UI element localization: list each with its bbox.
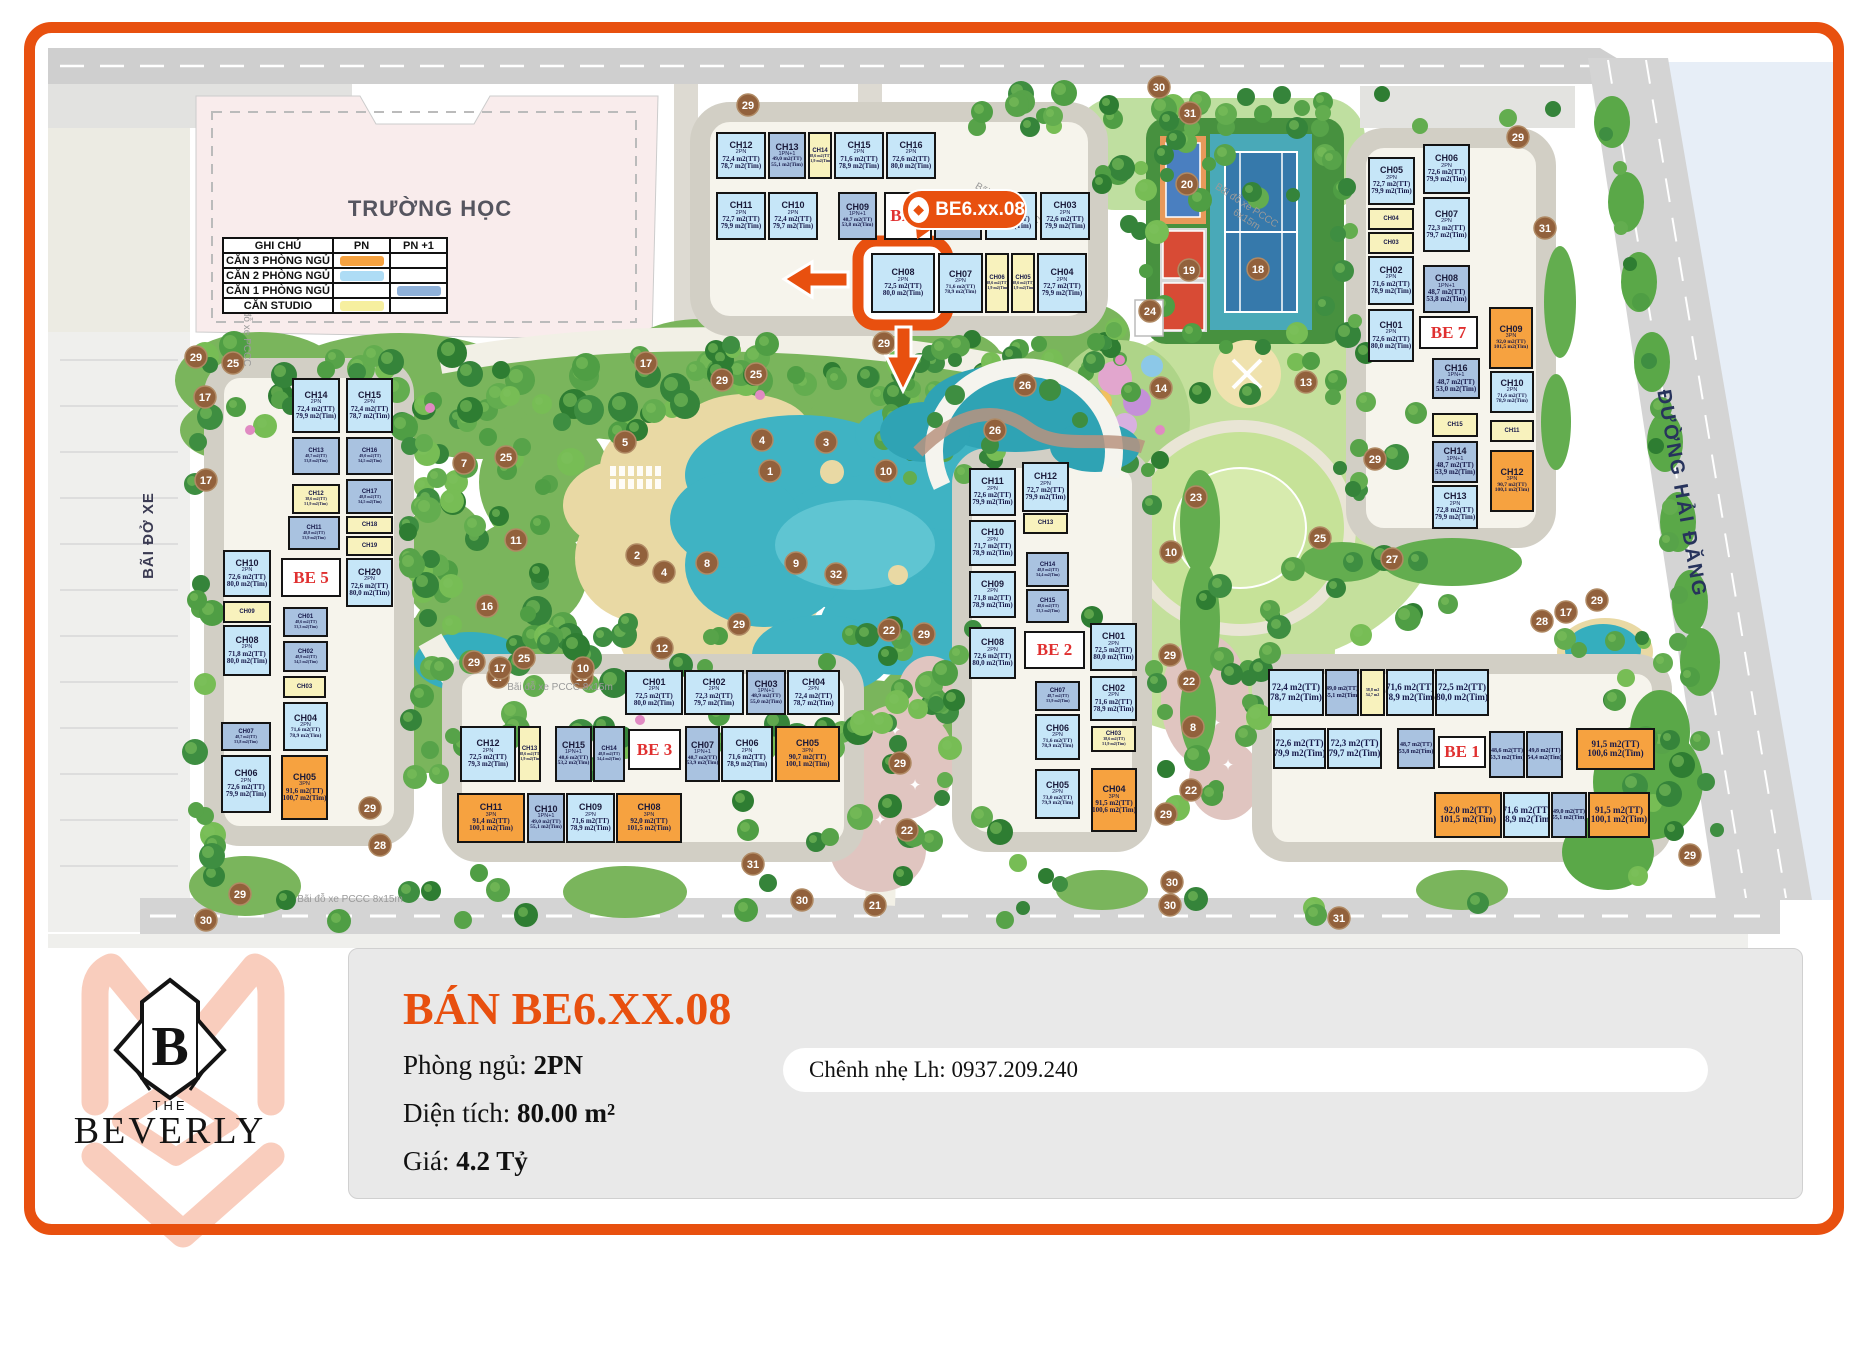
- svg-text:4: 4: [759, 435, 766, 447]
- svg-text:8: 8: [704, 558, 710, 570]
- svg-text:✦: ✦: [1222, 757, 1235, 774]
- svg-text:10: 10: [1165, 547, 1177, 559]
- svg-text:12: 12: [656, 643, 668, 655]
- svg-text:25: 25: [227, 358, 239, 370]
- svg-text:10: 10: [880, 466, 892, 478]
- svg-text:17: 17: [494, 663, 506, 675]
- svg-text:20: 20: [1181, 179, 1193, 191]
- svg-text:32: 32: [830, 569, 842, 581]
- svg-text:2: 2: [634, 550, 640, 562]
- svg-text:5: 5: [622, 437, 628, 449]
- svg-text:30: 30: [200, 915, 212, 927]
- svg-text:14: 14: [1155, 383, 1168, 395]
- svg-text:29: 29: [468, 657, 480, 669]
- svg-text:22: 22: [883, 625, 895, 637]
- svg-text:22: 22: [1185, 785, 1197, 797]
- svg-text:7: 7: [461, 458, 467, 470]
- svg-text:30: 30: [1166, 877, 1178, 889]
- svg-text:29: 29: [716, 375, 728, 387]
- svg-text:19: 19: [1183, 265, 1195, 277]
- svg-text:27: 27: [1386, 554, 1398, 566]
- svg-text:29: 29: [1164, 650, 1176, 662]
- svg-text:28: 28: [1536, 616, 1548, 628]
- svg-text:25: 25: [750, 369, 762, 381]
- svg-text:29: 29: [878, 338, 890, 350]
- svg-text:22: 22: [1183, 676, 1195, 688]
- svg-text:17: 17: [200, 475, 212, 487]
- svg-text:1: 1: [767, 466, 773, 478]
- svg-text:31: 31: [1539, 223, 1551, 235]
- svg-text:9: 9: [793, 558, 799, 570]
- svg-text:B: B: [151, 1016, 188, 1078]
- svg-text:29: 29: [918, 629, 930, 641]
- svg-text:24: 24: [1144, 306, 1157, 318]
- svg-text:BEVERLY: BEVERLY: [74, 1110, 266, 1152]
- svg-text:21: 21: [869, 900, 881, 912]
- svg-text:29: 29: [1684, 850, 1696, 862]
- svg-text:17: 17: [199, 392, 211, 404]
- svg-text:31: 31: [1184, 108, 1196, 120]
- svg-text:30: 30: [1153, 82, 1165, 94]
- svg-text:17: 17: [1560, 607, 1572, 619]
- svg-text:18: 18: [1252, 264, 1264, 276]
- svg-text:29: 29: [894, 758, 906, 770]
- svg-text:28: 28: [374, 840, 386, 852]
- svg-text:Bãi đỗ xe PCCC 8x15m: Bãi đỗ xe PCCC 8x15m: [297, 892, 403, 905]
- svg-text:3: 3: [823, 437, 829, 449]
- svg-text:29: 29: [1369, 454, 1381, 466]
- svg-text:16: 16: [481, 601, 493, 613]
- svg-text:✦: ✦: [909, 777, 922, 794]
- svg-text:Bãi đỗ xe PCCC 8x15m: Bãi đỗ xe PCCC 8x15m: [507, 680, 613, 693]
- svg-text:8: 8: [1190, 722, 1196, 734]
- svg-text:10: 10: [577, 663, 589, 675]
- svg-text:29: 29: [1512, 132, 1524, 144]
- svg-text:30: 30: [796, 895, 808, 907]
- svg-text:29: 29: [1160, 809, 1172, 821]
- svg-text:25: 25: [518, 653, 530, 665]
- svg-text:30: 30: [1164, 900, 1176, 912]
- svg-text:17: 17: [640, 358, 652, 370]
- svg-text:22: 22: [901, 825, 913, 837]
- svg-text:23: 23: [1190, 492, 1202, 504]
- svg-text:25: 25: [500, 452, 512, 464]
- svg-text:4: 4: [661, 567, 668, 579]
- svg-text:29: 29: [190, 352, 202, 364]
- svg-text:26: 26: [1019, 380, 1031, 392]
- svg-text:31: 31: [1333, 913, 1345, 925]
- svg-text:29: 29: [364, 803, 376, 815]
- svg-text:29: 29: [234, 889, 246, 901]
- svg-text:13: 13: [1300, 377, 1312, 389]
- svg-text:31: 31: [747, 859, 759, 871]
- svg-text:29: 29: [1591, 595, 1603, 607]
- svg-text:11: 11: [510, 535, 522, 547]
- svg-text:29: 29: [733, 619, 745, 631]
- svg-text:26: 26: [989, 425, 1001, 437]
- svg-text:25: 25: [1314, 533, 1326, 545]
- svg-text:29: 29: [742, 100, 754, 112]
